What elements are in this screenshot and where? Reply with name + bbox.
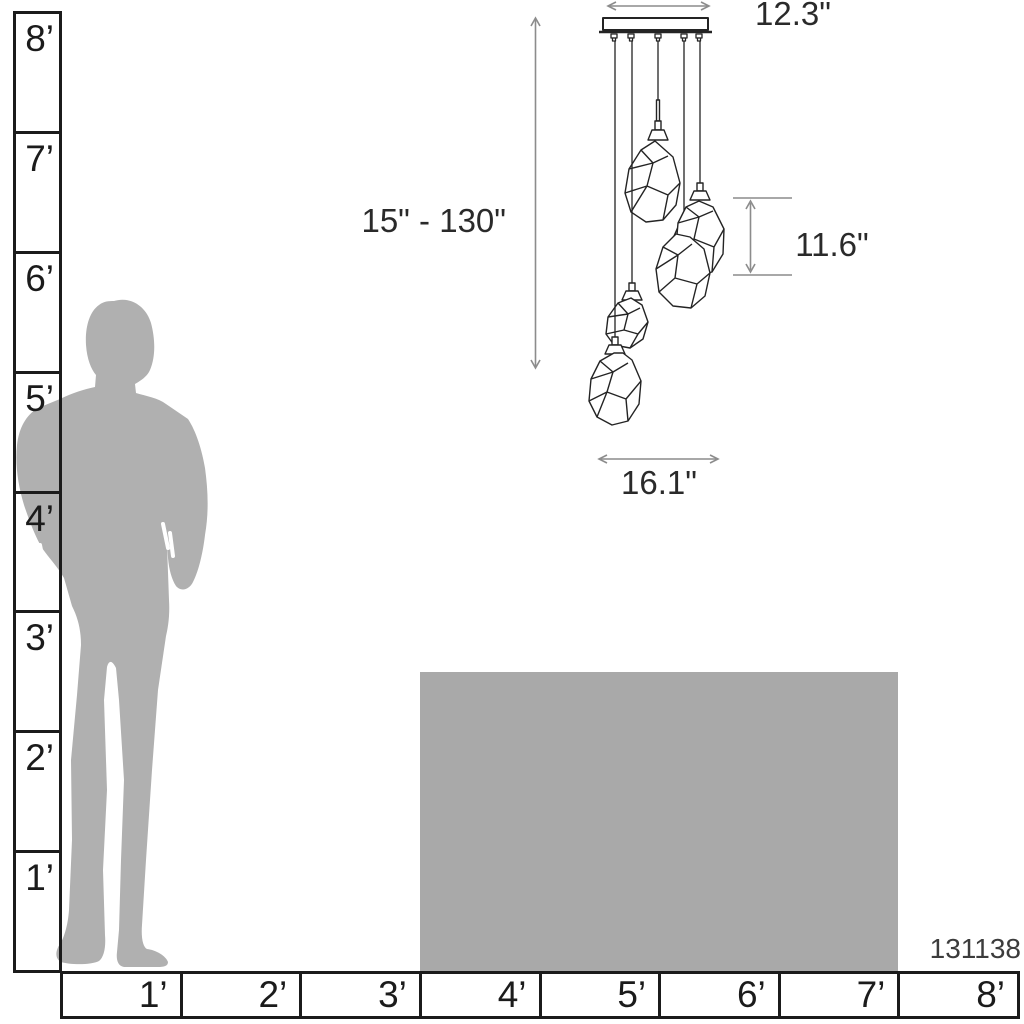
pendant-fixture-drawing	[589, 18, 724, 425]
pendant-cord	[690, 41, 710, 200]
diagram-graphics	[0, 0, 1024, 1024]
pendant-shade	[589, 353, 641, 425]
canopy-width-arrow	[608, 2, 709, 10]
canopy-stems	[611, 34, 702, 41]
bottom-width-ruler: 1’ 2’ 3’ 4’ 5’ 6’ 7’ 8’	[60, 971, 1020, 1019]
ruler-label: 7’	[781, 974, 898, 1015]
bottom-ruler-cell: 8’	[900, 974, 1017, 1016]
fixture-width-label: 16.1"	[599, 463, 719, 503]
ruler-label: 8’	[16, 14, 59, 57]
bottom-ruler-cell: 4’	[422, 974, 542, 1016]
left-ruler-cell: 2’	[16, 733, 59, 853]
socket	[648, 121, 668, 140]
shade-height-label: 11.6"	[772, 225, 892, 265]
bottom-ruler-cell: 6’	[661, 974, 781, 1016]
ruler-label: 6’	[661, 974, 778, 1015]
pendant-cord	[648, 41, 668, 140]
ruler-label: 4’	[422, 974, 539, 1015]
product-number: 131138	[930, 933, 1021, 965]
ruler-label: 1’	[63, 974, 180, 1015]
dimension-arrows	[531, 2, 792, 463]
ruler-label: 2’	[183, 974, 300, 1015]
ruler-label: 6’	[16, 254, 59, 297]
ruler-label: 3’	[16, 613, 59, 656]
table-block	[420, 672, 898, 971]
canopy-width-label: 12.3"	[733, 0, 853, 34]
bottom-ruler-cell: 2’	[183, 974, 303, 1016]
left-ruler-cell: 1’	[16, 853, 59, 970]
fixture-width-arrow	[599, 455, 718, 463]
ruler-label: 5’	[16, 374, 59, 417]
size-diagram: 8’ 7’ 6’ 5’ 4’ 3’ 2’ 1’ 1’ 2’ 3’ 4’ 5’ 6…	[0, 0, 1024, 1024]
bottom-ruler-cell: 5’	[542, 974, 662, 1016]
left-ruler-cell: 5’	[16, 374, 59, 494]
left-ruler-cell: 7’	[16, 134, 59, 254]
bottom-ruler-cell: 3’	[302, 974, 422, 1016]
ruler-label: 8’	[900, 974, 1017, 1015]
canopy	[599, 18, 712, 41]
left-height-ruler: 8’ 7’ 6’ 5’ 4’ 3’ 2’ 1’	[13, 11, 62, 973]
ruler-label: 5’	[542, 974, 659, 1015]
bottom-ruler-cell: 1’	[63, 974, 183, 1016]
socket	[622, 283, 642, 300]
ruler-label: 7’	[16, 134, 59, 177]
height-range-label: 15" - 130"	[330, 201, 506, 241]
left-ruler-cell: 4’	[16, 494, 59, 614]
left-ruler-cell: 3’	[16, 613, 59, 733]
bottom-ruler-cell: 7’	[781, 974, 901, 1016]
ruler-label: 4’	[16, 494, 59, 537]
ruler-label: 3’	[302, 974, 419, 1015]
left-ruler-cell: 6’	[16, 254, 59, 374]
height-range-arrow	[531, 18, 540, 368]
left-ruler-cell: 8’	[16, 14, 59, 134]
ruler-label: 2’	[16, 733, 59, 776]
pendant-shade	[625, 141, 680, 222]
ruler-label: 1’	[16, 853, 59, 896]
socket	[690, 183, 710, 200]
